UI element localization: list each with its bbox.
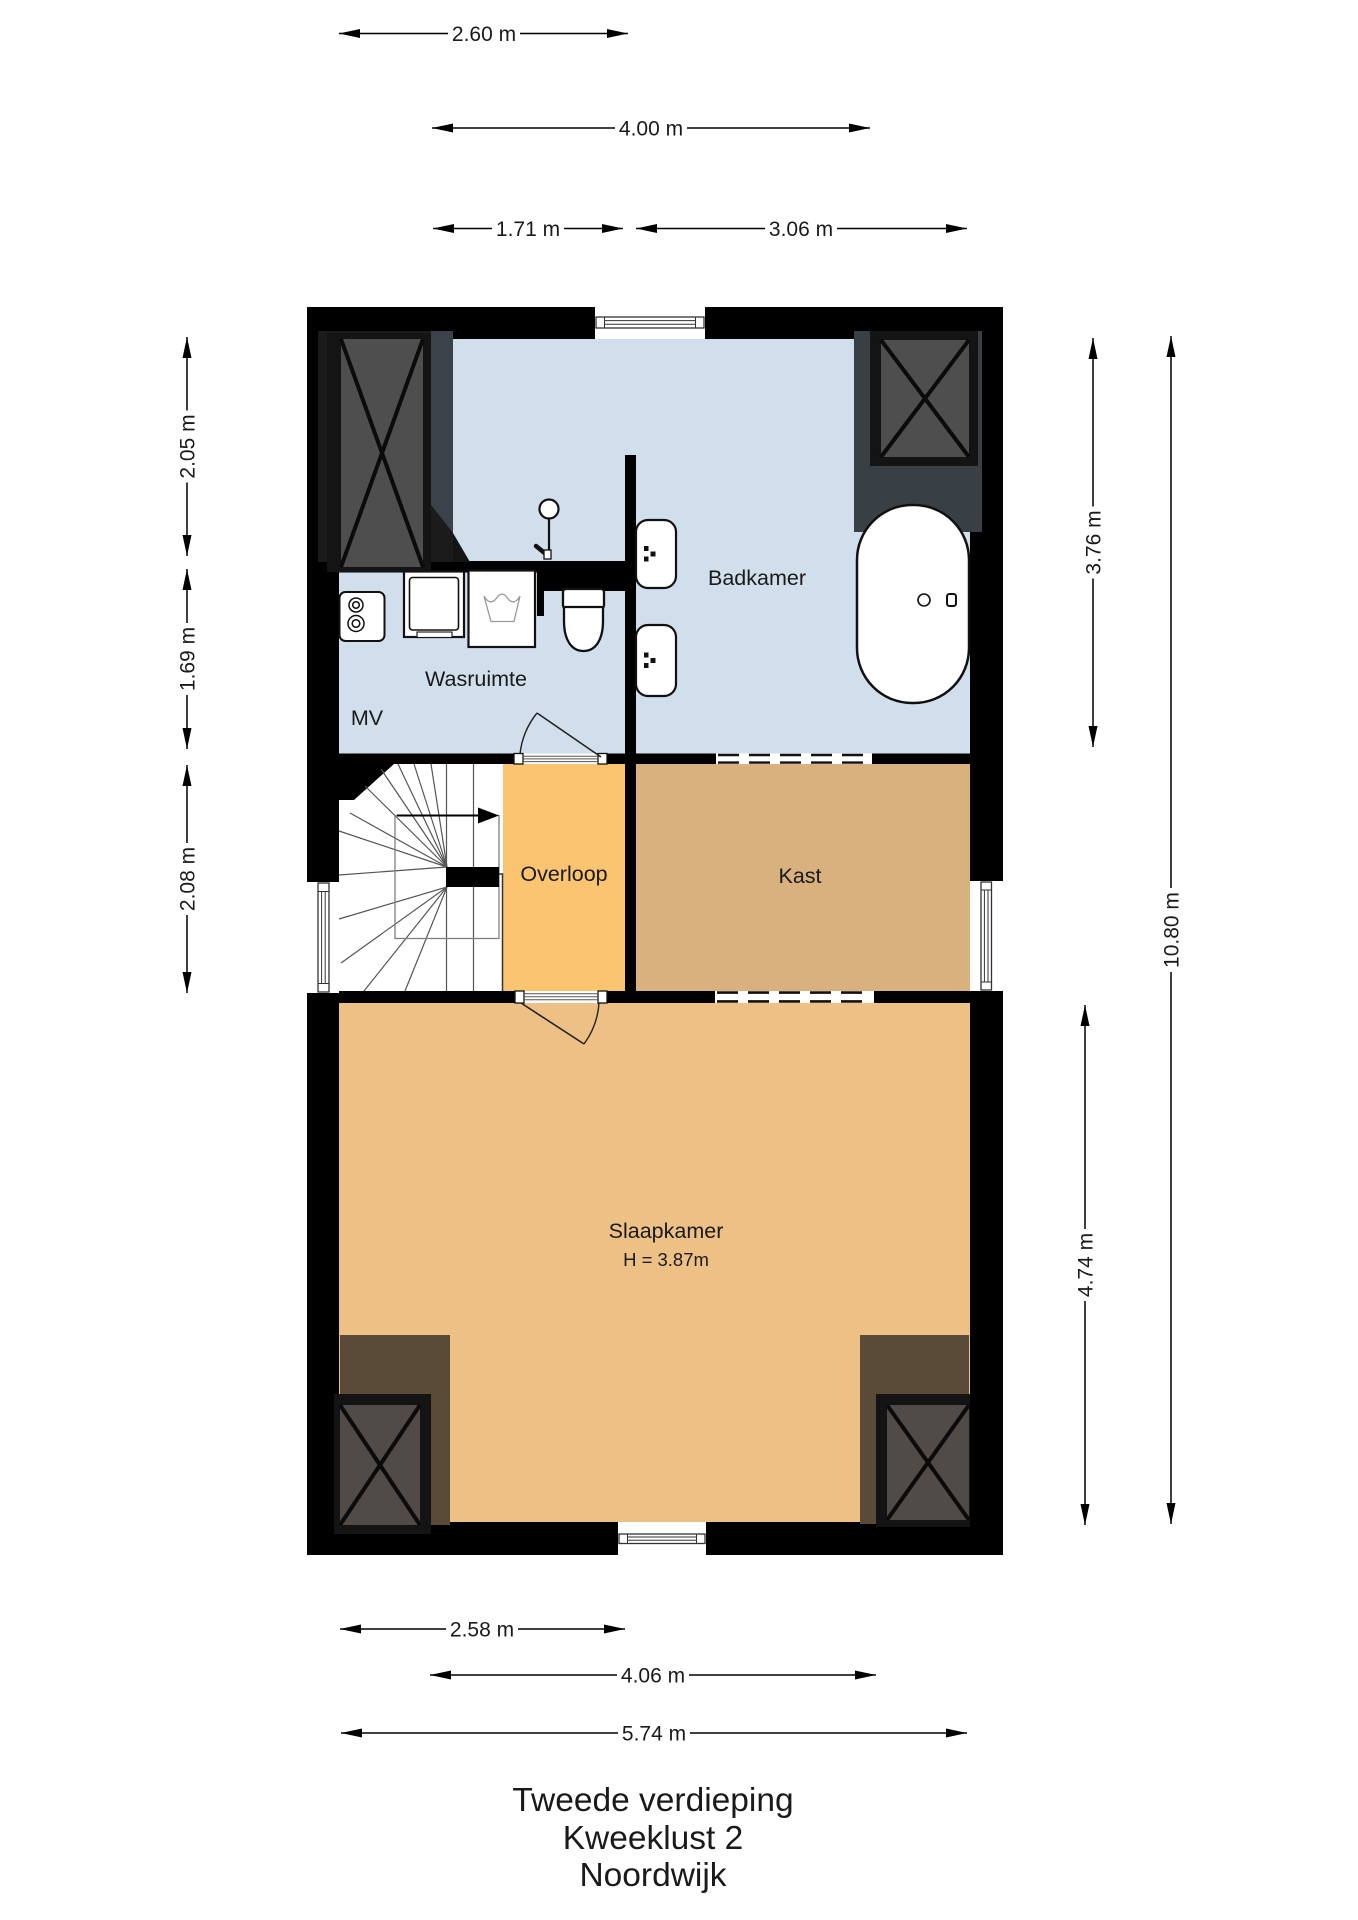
svg-text:4.00 m: 4.00 m	[619, 118, 683, 141]
svg-text:3.06 m: 3.06 m	[769, 218, 833, 241]
svg-text:Overloop: Overloop	[520, 862, 607, 886]
svg-text:3.76 m: 3.76 m	[1083, 510, 1106, 574]
svg-text:4.06 m: 4.06 m	[621, 1665, 685, 1688]
svg-text:1.71 m: 1.71 m	[496, 218, 560, 241]
svg-text:Wasruimte: Wasruimte	[425, 667, 527, 691]
svg-text:2.05 m: 2.05 m	[177, 414, 200, 478]
svg-text:H = 3.87m: H = 3.87m	[623, 1249, 709, 1270]
svg-text:5.74 m: 5.74 m	[622, 1723, 686, 1746]
svg-text:1.69 m: 1.69 m	[177, 627, 200, 691]
svg-text:Kast: Kast	[778, 864, 821, 888]
svg-text:MV: MV	[351, 706, 384, 730]
svg-text:Tweede verdieping: Tweede verdieping	[512, 1782, 793, 1819]
svg-text:Badkamer: Badkamer	[708, 566, 806, 590]
svg-text:2.58 m: 2.58 m	[450, 1619, 514, 1642]
svg-text:4.74 m: 4.74 m	[1075, 1233, 1098, 1297]
svg-text:2.60 m: 2.60 m	[452, 23, 516, 46]
svg-text:Kweeklust 2: Kweeklust 2	[563, 1820, 744, 1857]
svg-text:2.08 m: 2.08 m	[177, 847, 200, 911]
svg-text:Noordwijk: Noordwijk	[579, 1857, 726, 1894]
svg-text:Slaapkamer: Slaapkamer	[609, 1219, 724, 1243]
svg-text:10.80 m: 10.80 m	[1161, 892, 1184, 968]
